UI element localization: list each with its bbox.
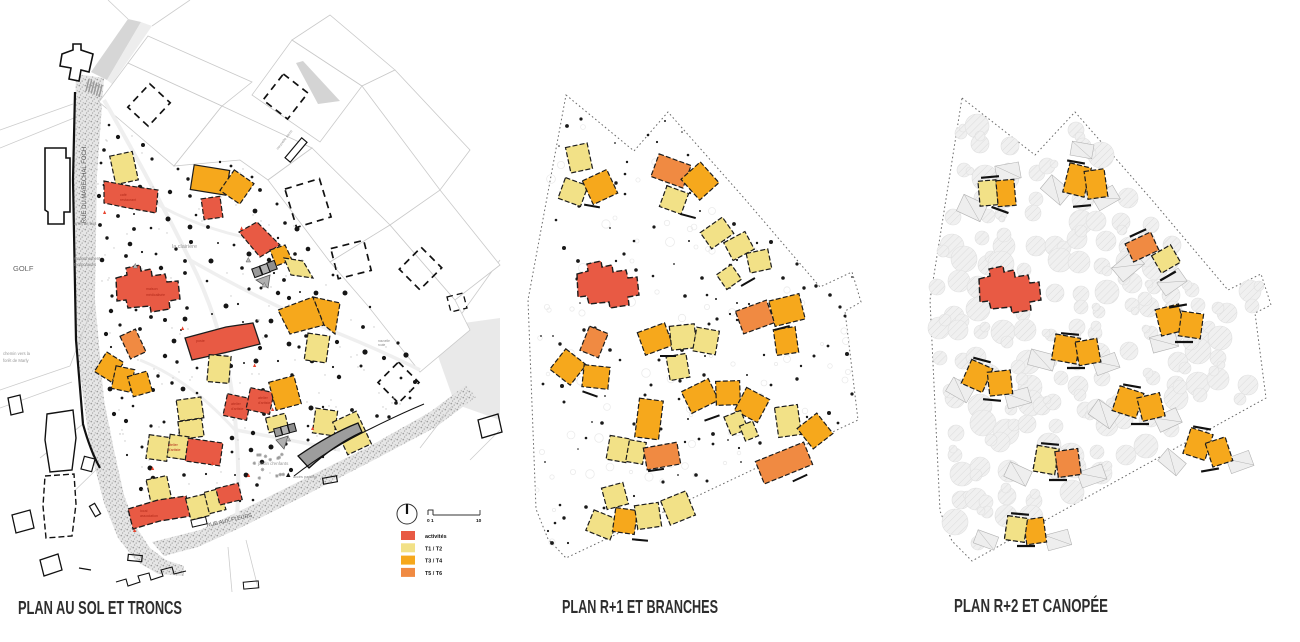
svg-text:la clairière: la clairière <box>172 244 197 250</box>
svg-text:arrêt de bus: arrêt de bus <box>74 221 96 226</box>
svg-text:10: 10 <box>476 518 482 524</box>
svg-text:atelier: atelier <box>258 396 269 400</box>
svg-text:0 1: 0 1 <box>427 518 434 524</box>
svg-text:médicalisée: médicalisée <box>146 293 165 297</box>
svg-text:PLAN AU SOL ET TRONCS: PLAN AU SOL ET TRONCS <box>18 598 182 618</box>
svg-text:jardin d'enfants: jardin d'enfants <box>257 461 289 466</box>
svg-text:atelier: atelier <box>231 402 242 406</box>
svg-text:maison: maison <box>146 287 158 291</box>
svg-text:accès parking: accès parking <box>293 475 316 479</box>
svg-text:poste: poste <box>196 339 205 343</box>
svg-text:chemin vers la: chemin vers la <box>3 351 31 356</box>
svg-text:atelier: atelier <box>168 443 179 447</box>
svg-text:RUE DU MARECHAL FOCH: RUE DU MARECHAL FOCH <box>82 147 88 223</box>
svg-text:route: route <box>378 343 385 347</box>
svg-text:café: café <box>120 193 127 197</box>
svg-text:activités: activités <box>425 534 447 540</box>
svg-text:PLAN R+1 ET BRANCHES: PLAN R+1 ET BRANCHES <box>562 597 718 617</box>
svg-text:association: association <box>140 514 158 518</box>
svg-text:stationnement: stationnement <box>74 256 101 261</box>
svg-text:d'artiste: d'artiste <box>231 407 243 411</box>
svg-text:temporaires: temporaires <box>74 262 96 267</box>
svg-text:forêt de Marly: forêt de Marly <box>3 358 30 363</box>
svg-text:local: local <box>140 509 148 513</box>
svg-text:GOLF: GOLF <box>13 264 34 273</box>
svg-text:d'artiste: d'artiste <box>168 448 180 452</box>
svg-text:PLAN R+2 ET CANOPÉE: PLAN R+2 ET CANOPÉE <box>954 595 1108 616</box>
svg-text:T5 / T6: T5 / T6 <box>425 571 442 577</box>
svg-text:d'artiste: d'artiste <box>258 401 270 405</box>
svg-text:T3 / T4: T3 / T4 <box>425 559 442 565</box>
svg-text:T1 / T2: T1 / T2 <box>425 546 442 552</box>
svg-text:restaurant: restaurant <box>120 198 136 202</box>
